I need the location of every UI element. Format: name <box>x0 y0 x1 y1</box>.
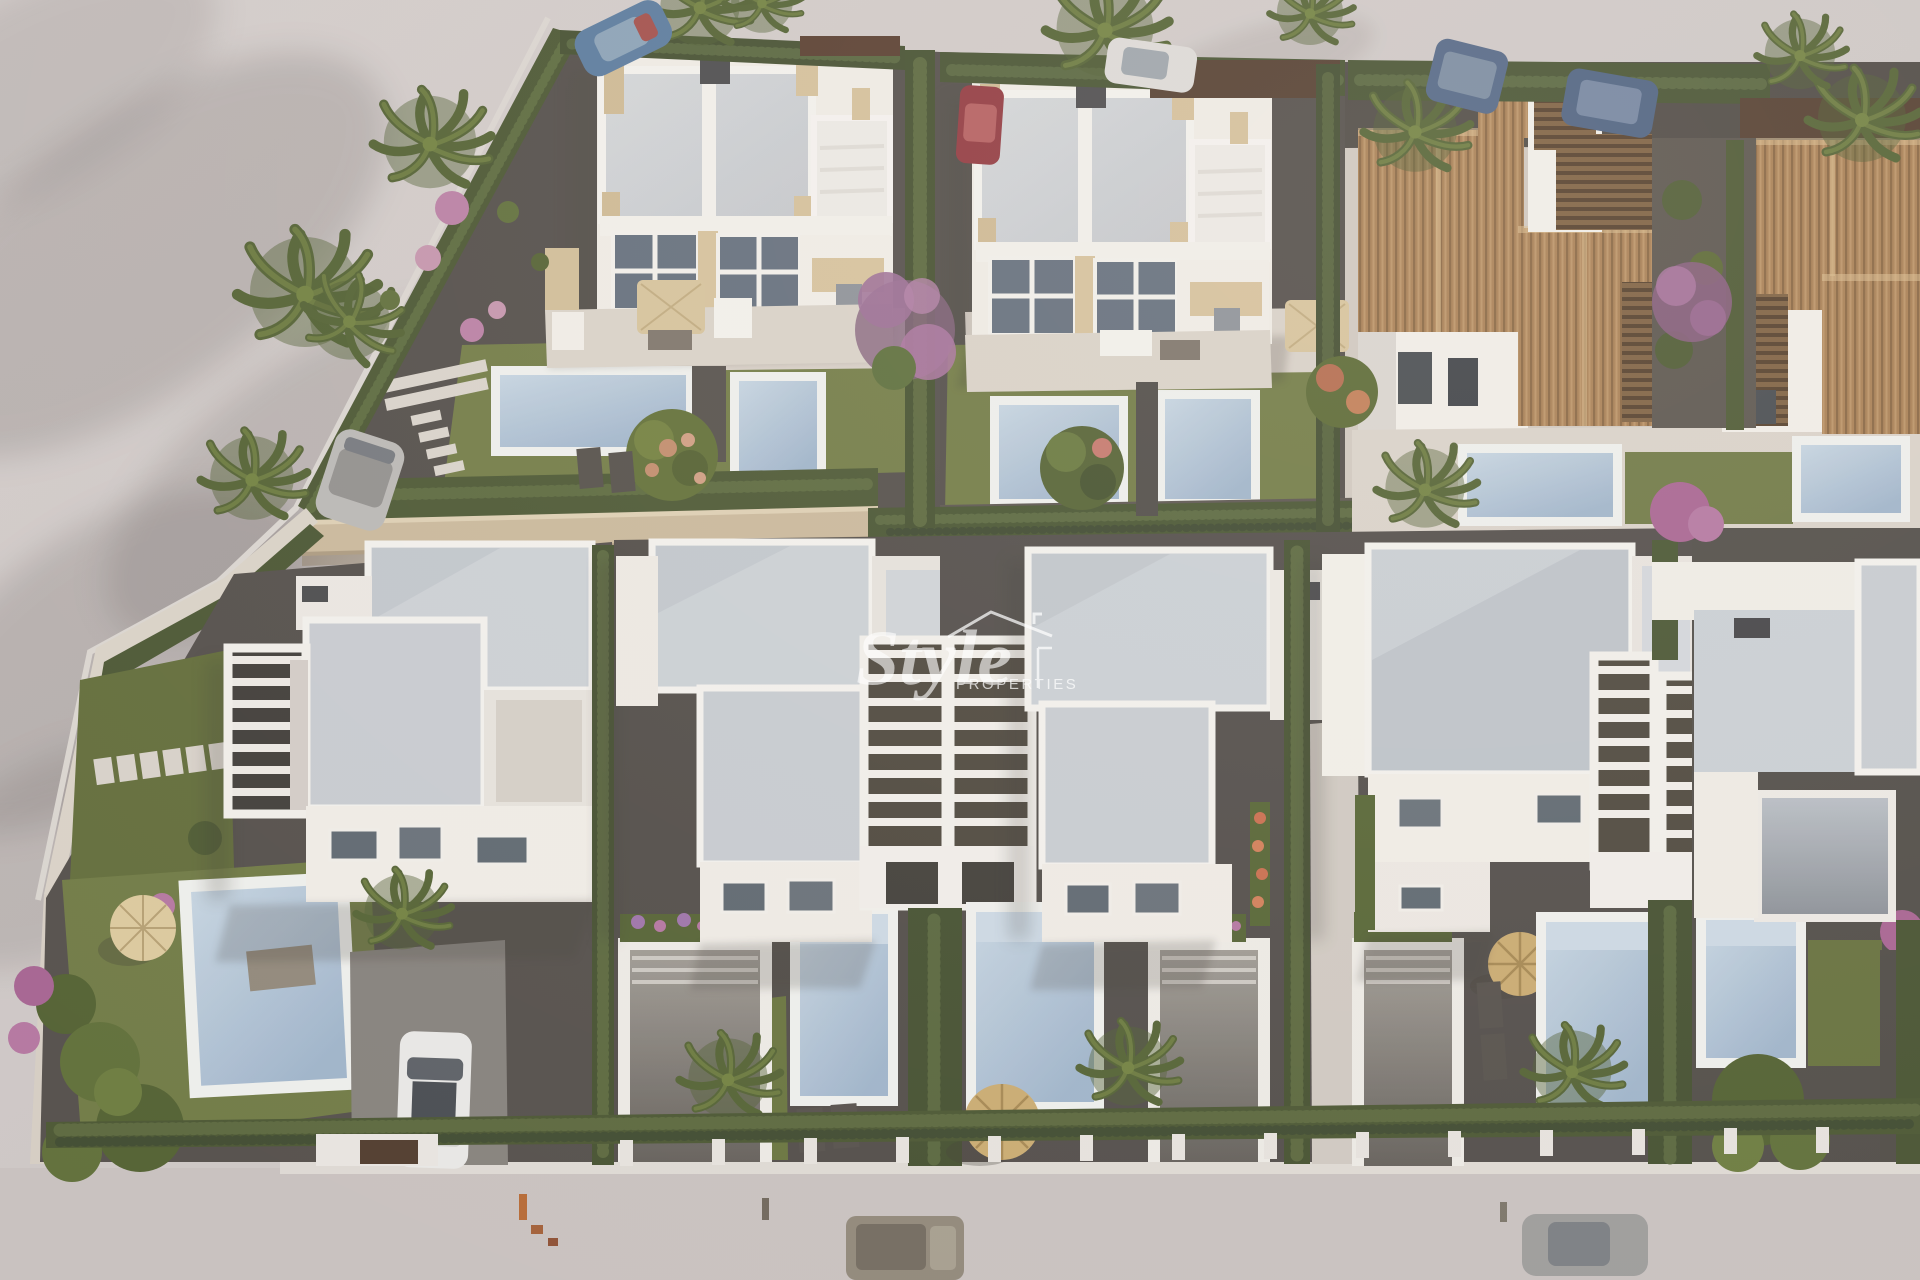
svg-text:PROPERTIES: PROPERTIES <box>956 676 1078 693</box>
